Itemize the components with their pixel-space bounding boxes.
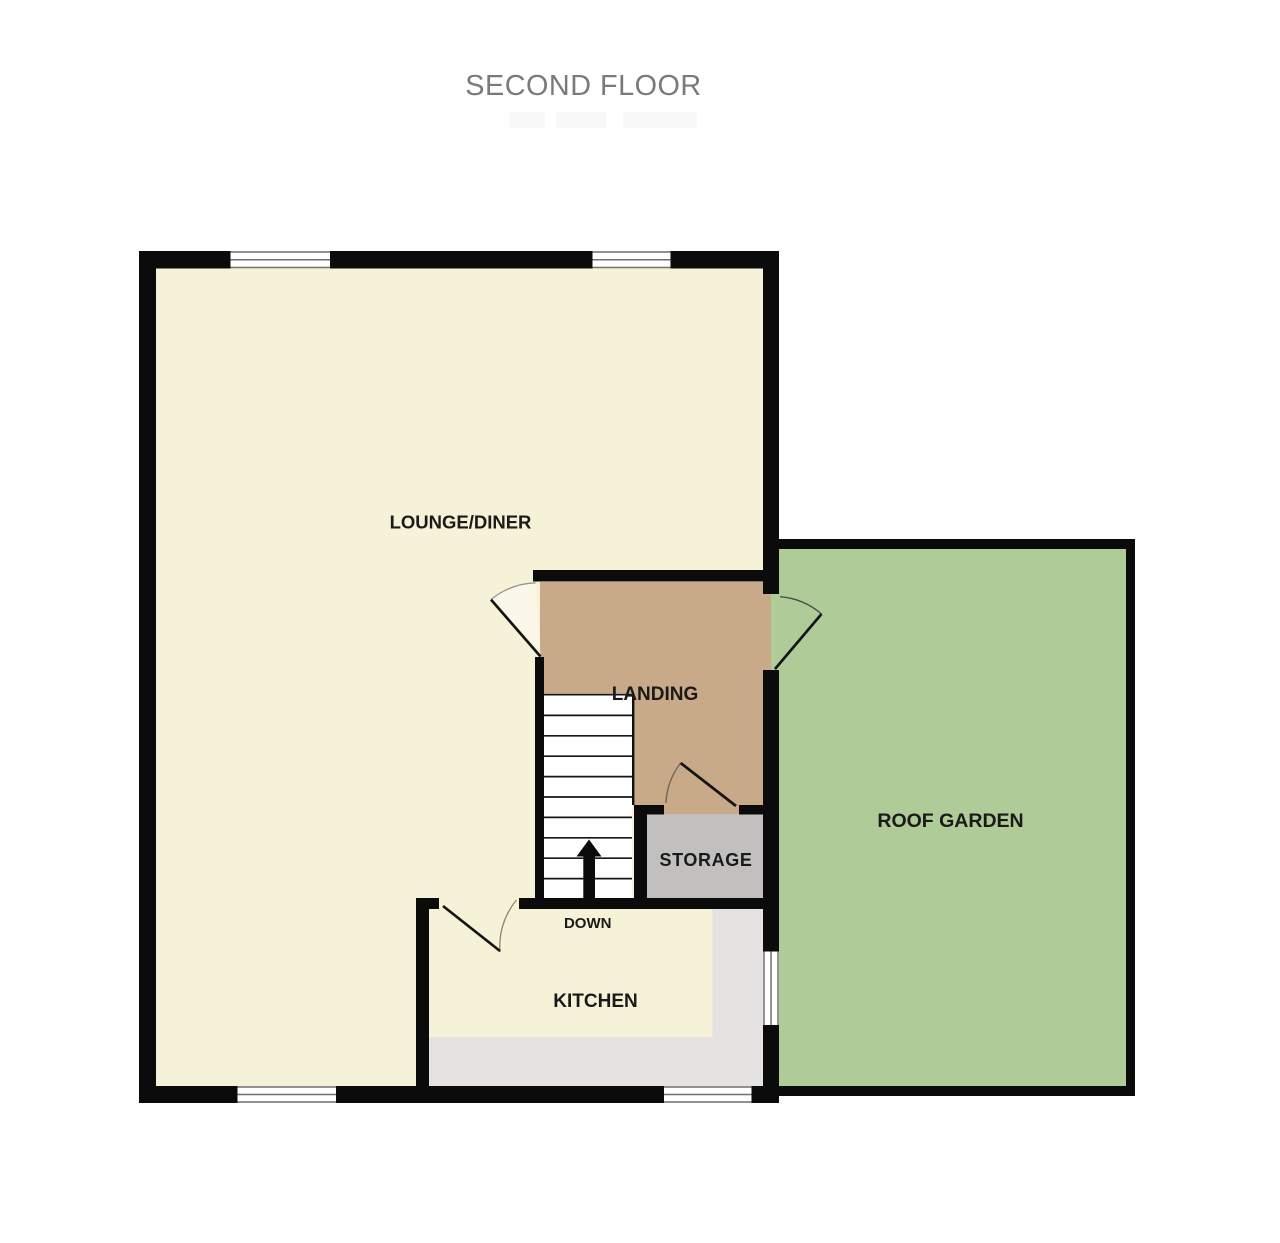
svg-text:SECOND FLOOR: SECOND FLOOR bbox=[465, 70, 701, 102]
svg-text:ROOF GARDEN: ROOF GARDEN bbox=[877, 810, 1023, 832]
svg-text:STORAGE: STORAGE bbox=[660, 850, 753, 870]
svg-text:LANDING: LANDING bbox=[612, 684, 699, 705]
svg-text:DOWN: DOWN bbox=[564, 915, 612, 932]
svg-text:KITCHEN: KITCHEN bbox=[553, 991, 637, 1012]
svg-text:LOUNGE/DINER: LOUNGE/DINER bbox=[390, 512, 532, 533]
